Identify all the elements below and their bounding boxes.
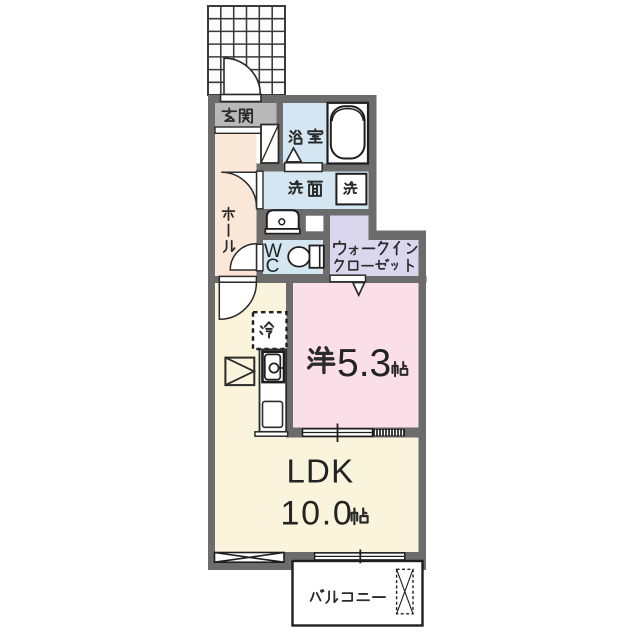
svg-text:LDK: LDK	[287, 453, 355, 490]
svg-text:C: C	[266, 256, 280, 277]
svg-text:10.0: 10.0	[281, 495, 354, 533]
svg-text:5.3: 5.3	[337, 342, 391, 385]
